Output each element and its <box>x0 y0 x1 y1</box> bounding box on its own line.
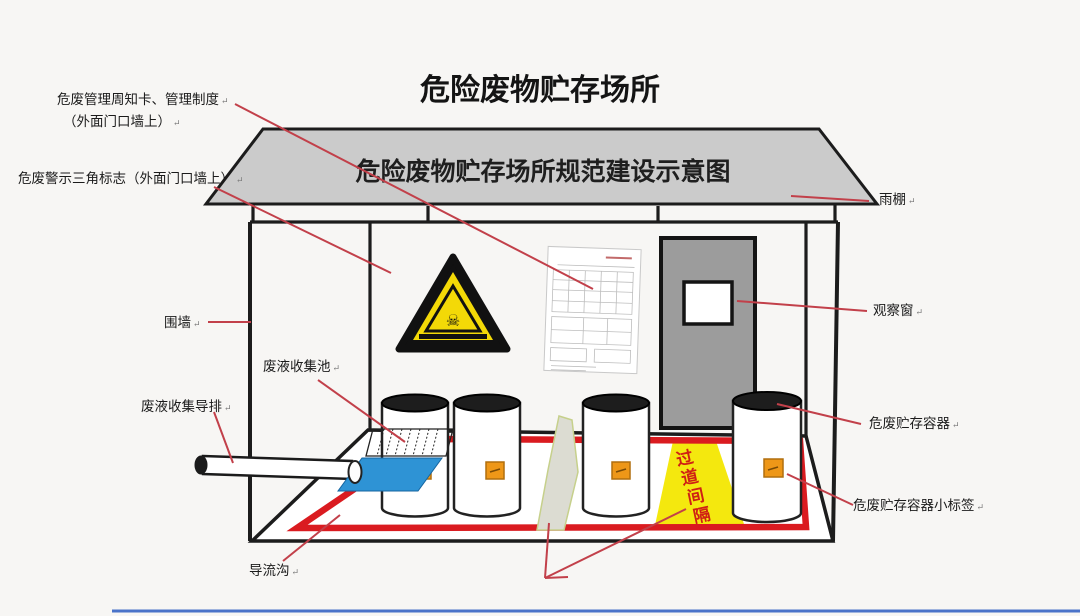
drum-open-top <box>583 395 649 412</box>
drain-pipe-cap <box>195 456 208 475</box>
callout-container-label: 危废贮存容器小标签↵ <box>853 497 984 513</box>
page-title: 危险废物贮存场所 <box>420 73 660 107</box>
storage-drums <box>382 392 801 522</box>
drain-pipe <box>195 456 353 480</box>
observation-window <box>684 282 732 324</box>
callout-collection-drain: 废液收集导排↵ <box>141 399 232 414</box>
roof-caption: 危险废物贮存场所规范建设示意图 <box>355 157 730 186</box>
storage-drum <box>583 403 649 517</box>
callout-warning-triangle: 危废警示三角标志（外面门口墙上）↵ <box>18 171 244 186</box>
notice-card <box>544 246 641 373</box>
leader-tick <box>545 577 568 578</box>
notice-card-paper <box>544 246 641 373</box>
drum-open-top <box>382 395 448 412</box>
storage-drum <box>454 403 520 517</box>
callout-notice-card-line1: 危废管理周知卡、管理制度↵ <box>57 91 229 107</box>
drum-small-label <box>764 459 783 477</box>
diagram-canvas: 危险废物贮存场所 危险废物贮存场所规范建设示意图 ☠ <box>0 0 1080 616</box>
drain-pipe-body <box>203 456 352 479</box>
drum-small-label <box>486 462 504 479</box>
triangle-bar <box>419 334 487 339</box>
callout-notice-card-line2: （外面门口墙上）↵ <box>63 114 181 129</box>
callout-storage-container: 危废贮存容器↵ <box>869 415 960 431</box>
drum-small-label <box>612 462 630 479</box>
drum-open-top <box>454 395 520 412</box>
callout-collection-pool: 废液收集池↵ <box>263 359 340 374</box>
pipe-outlet <box>349 461 362 483</box>
skull-icon: ☠ <box>446 311 460 330</box>
